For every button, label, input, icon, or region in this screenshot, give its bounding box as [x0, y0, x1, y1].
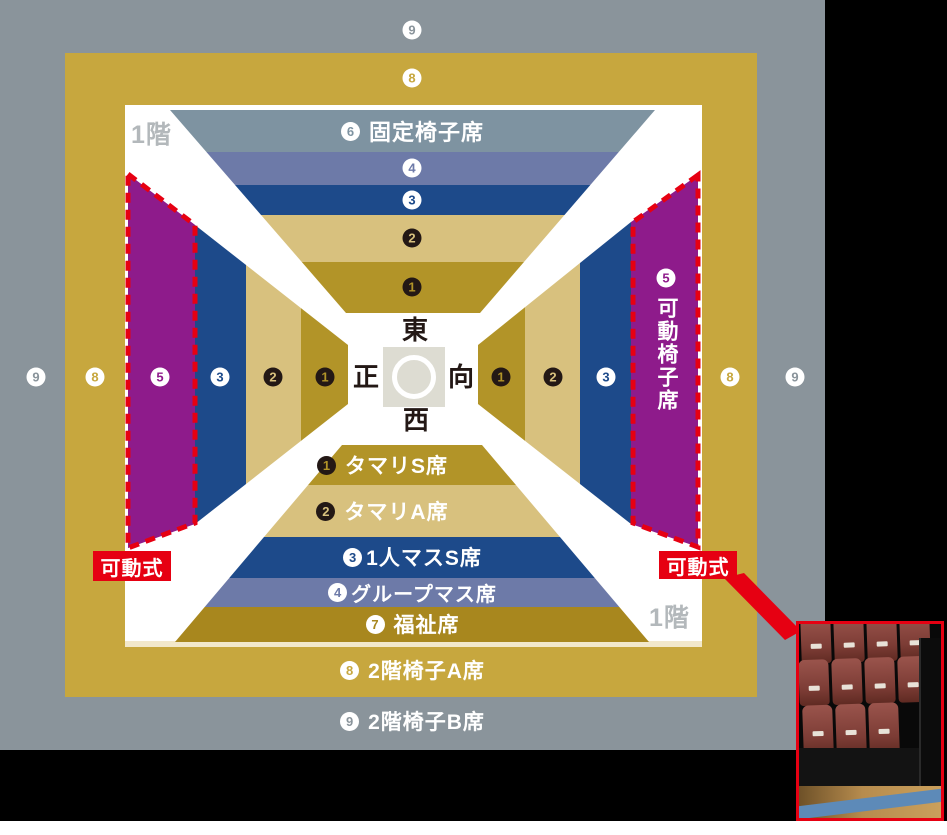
zone8-label: 2階椅子A席: [368, 655, 485, 685]
seat-icon: [800, 621, 832, 664]
zone5-band: [128, 174, 195, 549]
zone8-badge: 8: [721, 368, 740, 387]
zone4-label: グループマス席: [351, 578, 497, 607]
zone8-badge: 8: [86, 368, 105, 387]
zone3-badge: 3: [211, 368, 230, 387]
zone7-badge: 7: [366, 615, 385, 634]
zone5-vertical-label: 可動椅子席: [655, 297, 677, 412]
zone5-badge: 5: [151, 368, 170, 387]
legend-row-zone9: 9 2階椅子B席: [0, 707, 825, 735]
zone6-label: 固定椅子席: [369, 115, 484, 147]
zone4-badge: 4: [403, 159, 422, 178]
movable-seats-photo: [796, 621, 944, 821]
zone9-badge: 9: [340, 712, 359, 731]
zone2-label: タマリA席: [344, 496, 448, 526]
seat-icon: [866, 621, 898, 662]
zone4-badge: 4: [328, 583, 347, 602]
zone2-badge: 2: [316, 502, 335, 521]
arena-seating-map: 東 西 正 向 1階 1階 9 8 4 3 2 1 9 8 5 3 2 1 1 …: [0, 0, 825, 750]
legend-row-zone2: 2 タマリA席: [0, 497, 825, 525]
zone3-badge: 3: [597, 368, 616, 387]
zone7-label: 福祉席: [394, 609, 460, 639]
seat-icon: [864, 657, 896, 704]
zone1-badge: 1: [317, 456, 336, 475]
legend-row-zone7: 7 福祉席: [0, 610, 825, 638]
zone2-badge: 2: [403, 229, 422, 248]
zone8-badge: 8: [340, 661, 359, 680]
seat-icon: [831, 658, 863, 705]
zone9-badge: 9: [403, 21, 422, 40]
direction-west: 西: [403, 407, 429, 433]
zone9-label: 2階椅子B席: [368, 706, 485, 736]
zone2-badge: 2: [264, 368, 283, 387]
zone1-badge: 1: [403, 278, 422, 297]
zone1-badge: 1: [492, 368, 511, 387]
legend-row-zone8: 8 2階椅子A席: [0, 656, 825, 684]
zone3-label: 1人マスS席: [366, 542, 482, 572]
seat-rail: [919, 638, 941, 790]
zone1-label: タマリS席: [345, 450, 448, 480]
zone9-badge: 9: [27, 368, 46, 387]
legend-row-zone1: 1 タマリS席: [0, 451, 825, 479]
movable-tag-east: 可動式: [659, 551, 737, 579]
zone1-badge: 1: [316, 368, 335, 387]
zone9-badge: 9: [786, 368, 805, 387]
movable-tag-west: 可動式: [93, 551, 171, 581]
legend-row-zone6: 6 固定椅子席: [0, 117, 825, 145]
zone2-badge: 2: [544, 368, 563, 387]
direction-front: 正: [353, 364, 379, 390]
page-bottom-strip: [0, 821, 947, 835]
legend-row-zone4: 4 グループマス席: [0, 578, 825, 606]
seating-chart-page: 東 西 正 向 1階 1階 9 8 4 3 2 1 9 8 5 3 2 1 1 …: [0, 0, 947, 835]
seat-row: [798, 656, 929, 706]
zone8-badge: 8: [403, 69, 422, 88]
direction-east: 東: [402, 317, 428, 343]
zone3-badge: 3: [403, 191, 422, 210]
zone3-badge: 3: [343, 548, 362, 567]
zone6-badge: 6: [341, 122, 360, 141]
seat-icon: [798, 659, 830, 706]
zone5-badge: 5: [657, 269, 676, 288]
dohyo-ring-icon: [392, 355, 436, 399]
dohyo-square: [383, 347, 445, 407]
direction-back: 向: [448, 364, 474, 390]
seat-icon: [833, 621, 865, 663]
